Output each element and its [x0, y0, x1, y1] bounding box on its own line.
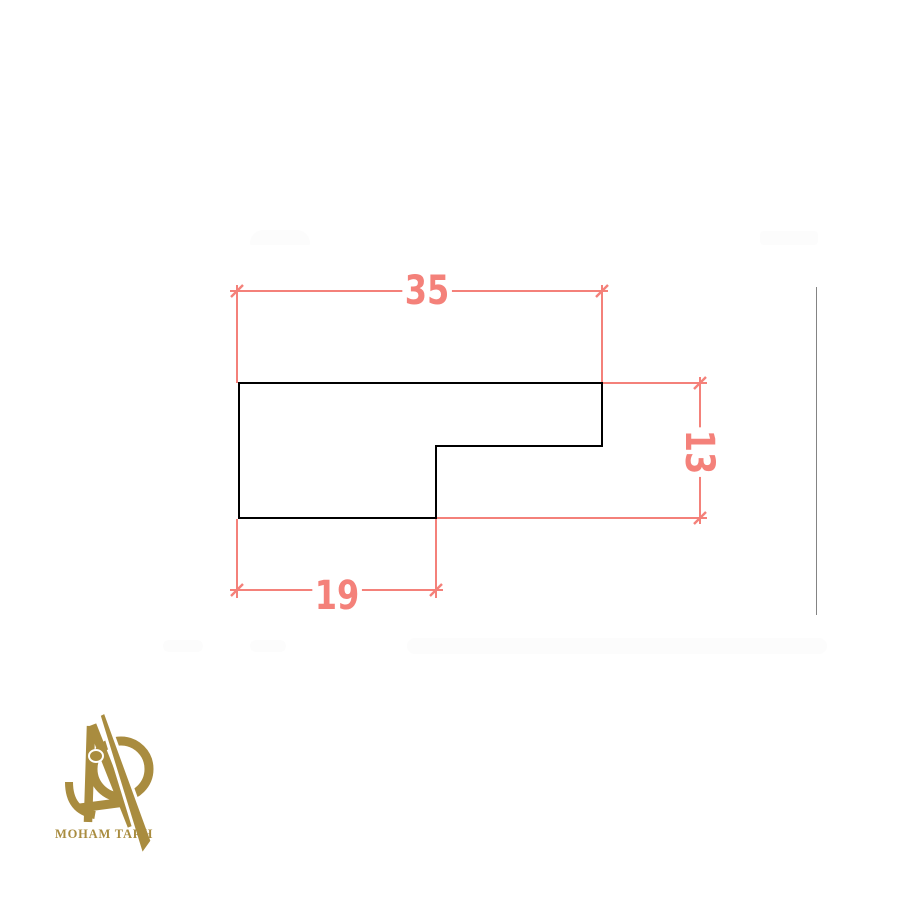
- logo-dot: [89, 750, 103, 762]
- drawing-canvas: 35 13 19 MOHAM TARH: [0, 0, 900, 900]
- dimension-value-right: 13: [679, 427, 719, 476]
- logo-wordmark: MOHAM TARH: [55, 827, 149, 842]
- dimension-value-top: 35: [402, 271, 451, 311]
- dimension-value-bottom: 19: [312, 576, 361, 616]
- dimension-right-height: [437, 377, 707, 524]
- profile-outline: [239, 383, 602, 518]
- logo-crossbar: [80, 802, 125, 808]
